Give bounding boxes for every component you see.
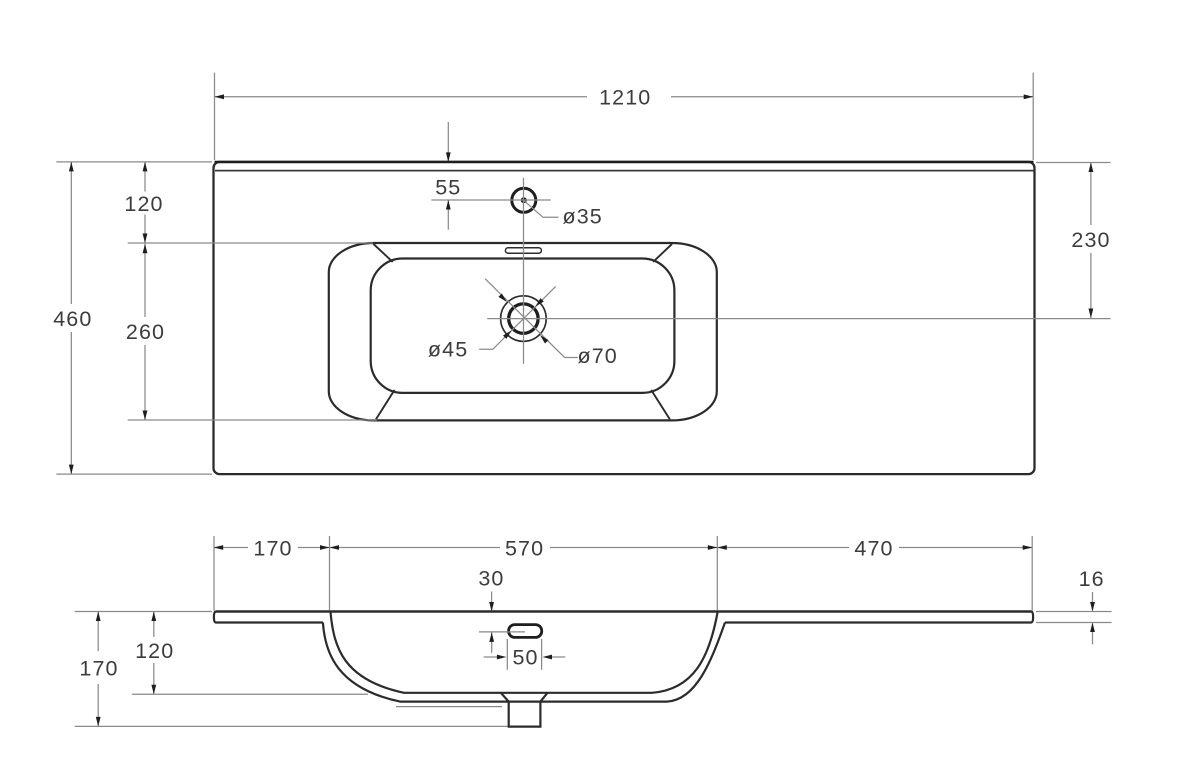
svg-text:55: 55 (435, 176, 461, 200)
svg-text:570: 570 (505, 537, 544, 561)
svg-text:470: 470 (854, 537, 893, 561)
svg-text:170: 170 (253, 537, 292, 561)
svg-text:120: 120 (124, 192, 163, 216)
svg-text:1210: 1210 (599, 86, 651, 110)
svg-text:ø70: ø70 (578, 344, 618, 368)
svg-text:16: 16 (1079, 567, 1105, 591)
svg-text:ø35: ø35 (563, 204, 603, 228)
svg-text:460: 460 (53, 307, 92, 331)
svg-text:50: 50 (512, 645, 538, 669)
svg-text:ø45: ø45 (428, 338, 468, 362)
svg-text:230: 230 (1071, 228, 1110, 252)
svg-text:30: 30 (478, 566, 504, 590)
svg-text:260: 260 (126, 320, 165, 344)
svg-text:170: 170 (79, 656, 118, 680)
svg-text:120: 120 (135, 639, 174, 663)
